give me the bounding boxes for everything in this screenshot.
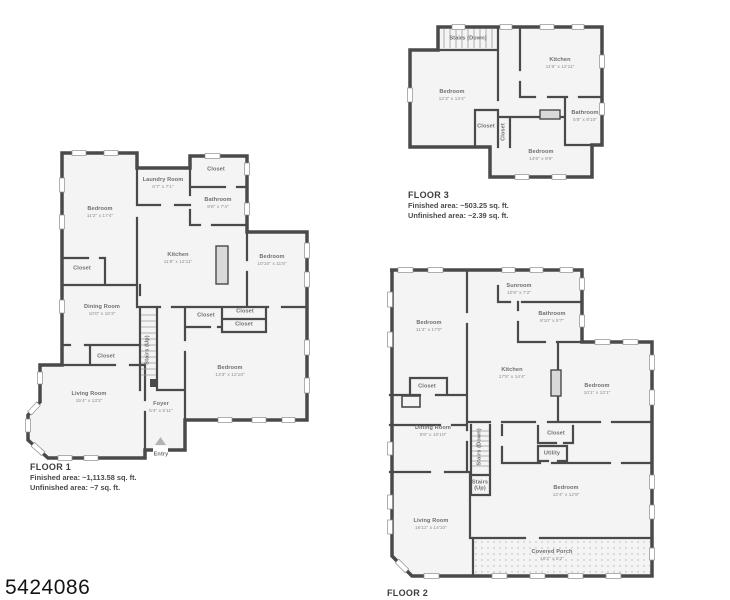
floor1-title-block: FLOOR 1 Finished area: ~1,113.58 sq. ft.… [30,461,137,493]
unfinished-area: Unfinished area: ~7 sq. ft. [30,483,137,493]
finished-area: Finished area: ~503.25 sq. ft. [408,201,509,211]
floor2-stoop [402,396,420,407]
floor-title: FLOOR 2 [387,587,428,599]
floor3-plan [408,25,605,180]
floor-title: FLOOR 3 [408,189,509,201]
floor3-title-block: FLOOR 3 Finished area: ~503.25 sq. ft. U… [408,189,509,221]
stair-newel [150,379,157,387]
photo-id: 5424086 [5,576,90,600]
floor2-plan [388,268,655,579]
floor2-chimney [551,370,561,396]
covered-porch-hatch [473,540,650,574]
floor1-plan [26,151,310,461]
floorplan-page: { "photo_id": "5424086", "colors": { "wa… [0,0,730,600]
floor3-chimney [540,110,560,119]
floor-title: FLOOR 1 [30,461,137,473]
finished-area: Finished area: ~1,113.58 sq. ft. [30,473,137,483]
floorplan-drawing [0,0,730,600]
floor2-title-block: FLOOR 2 [387,587,428,599]
unfinished-area: Unfinished area: ~2.39 sq. ft. [408,211,509,221]
floor1-footprint [28,153,307,458]
entry-door-gap [153,446,168,454]
floor1-chimney [216,246,228,284]
